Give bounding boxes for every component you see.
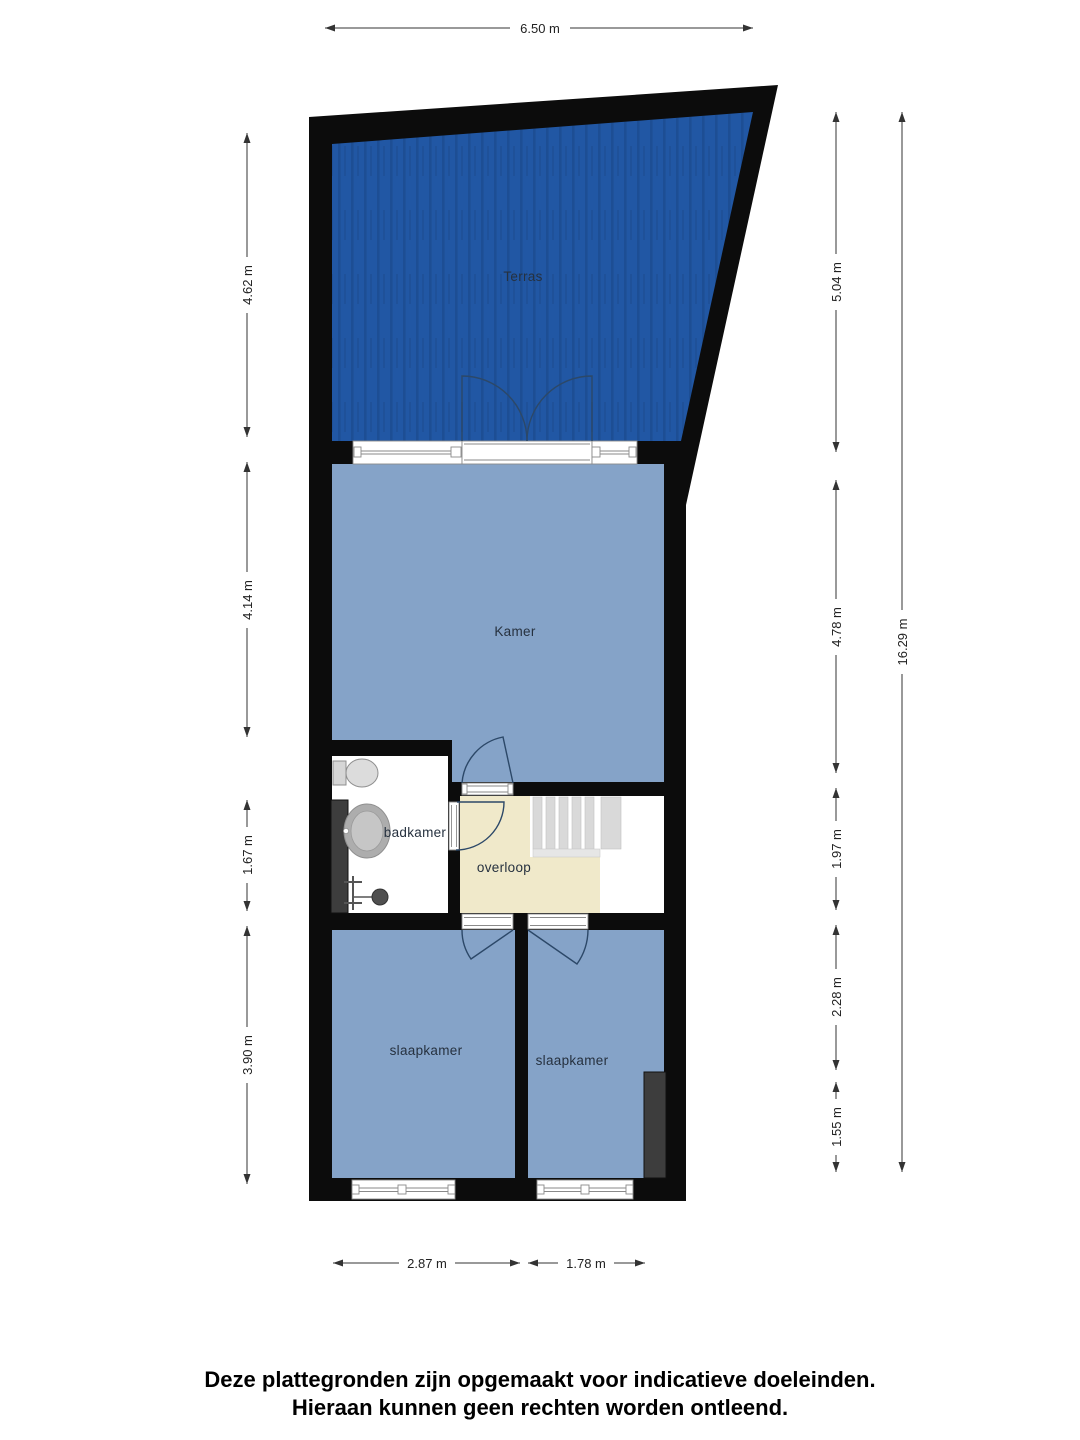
dim-bottom-1: 1.78 m	[566, 1256, 606, 1271]
stair-step-edge	[533, 849, 600, 857]
room-kamer	[332, 464, 664, 782]
floor-plan-page: Terras Kamer badkamer overloop slaapkame…	[0, 0, 1080, 1440]
dim-right-3: 2.28 m	[829, 977, 844, 1017]
window-divider	[629, 447, 636, 457]
window-divider	[451, 447, 461, 457]
window-divider	[448, 1185, 455, 1194]
dim-top-width: 6.50 m	[520, 21, 560, 36]
dim-left-3: 3.90 m	[240, 1035, 255, 1075]
label-badkamer: badkamer	[384, 825, 447, 840]
dim-left-1: 4.14 m	[240, 580, 255, 620]
stair-tread	[546, 797, 555, 849]
dimension-total-height: 16.29 m	[893, 112, 911, 1172]
disclaimer-line-1: Deze plattegronden zijn opgemaakt voor i…	[0, 1366, 1080, 1394]
dim-right-0: 5.04 m	[829, 262, 844, 302]
dim-left-0: 4.62 m	[240, 265, 255, 305]
door-threshold	[449, 802, 459, 850]
door-threshold-terras	[462, 441, 592, 464]
window-divider	[537, 1185, 544, 1194]
staircase	[533, 797, 621, 857]
shower-head	[372, 889, 388, 905]
dim-right-1: 4.78 m	[829, 607, 844, 647]
label-terras: Terras	[503, 269, 542, 284]
disclaimer: Deze plattegronden zijn opgemaakt voor i…	[0, 1366, 1080, 1422]
dim-left-2: 1.67 m	[240, 835, 255, 875]
window-divider	[626, 1185, 633, 1194]
dim-right-2: 1.97 m	[829, 829, 844, 869]
door-threshold	[462, 783, 513, 795]
window-divider	[352, 1185, 359, 1194]
label-overloop: overloop	[477, 860, 531, 875]
sink-basin	[351, 811, 383, 851]
dim-bottom-0: 2.87 m	[407, 1256, 447, 1271]
window-divider	[398, 1185, 406, 1194]
disclaimer-line-2: Hieraan kunnen geen rechten worden ontle…	[0, 1394, 1080, 1422]
toilet-bowl	[346, 759, 378, 787]
toilet-cistern	[333, 761, 346, 785]
window-divider	[592, 447, 600, 457]
dimensions-bottom: 2.87 m 1.78 m	[333, 1254, 645, 1272]
stair-tread	[585, 797, 594, 849]
door-jamb	[508, 784, 513, 794]
stair-landing-tread	[601, 797, 621, 849]
duct-shaft	[644, 1072, 666, 1178]
floor-plan-drawing: Terras Kamer badkamer overloop slaapkame…	[0, 0, 1080, 1440]
shower-wall	[331, 800, 348, 913]
dimensions-right: 5.04 m 4.78 m 1.97 m 2.28 m 1.55 m	[827, 112, 845, 1172]
label-slaapkamer-left: slaapkamer	[390, 1043, 463, 1058]
label-slaapkamer-right: slaapkamer	[536, 1053, 609, 1068]
dim-total-height: 16.29 m	[895, 619, 910, 666]
stair-tread	[559, 797, 568, 849]
stair-tread	[533, 797, 542, 849]
door-jamb	[462, 784, 467, 794]
stair-tread	[572, 797, 581, 849]
door-threshold	[528, 914, 588, 929]
sink-faucet	[343, 828, 348, 833]
door-threshold	[462, 914, 513, 929]
dimension-top-width: 6.50 m	[325, 19, 753, 37]
dimensions-left: 4.62 m 4.14 m 1.67 m 3.90 m	[238, 133, 256, 1184]
window-divider	[581, 1185, 589, 1194]
dim-right-4: 1.55 m	[829, 1107, 844, 1147]
window-divider	[354, 447, 361, 457]
label-kamer: Kamer	[494, 624, 535, 639]
window-left	[353, 441, 462, 464]
